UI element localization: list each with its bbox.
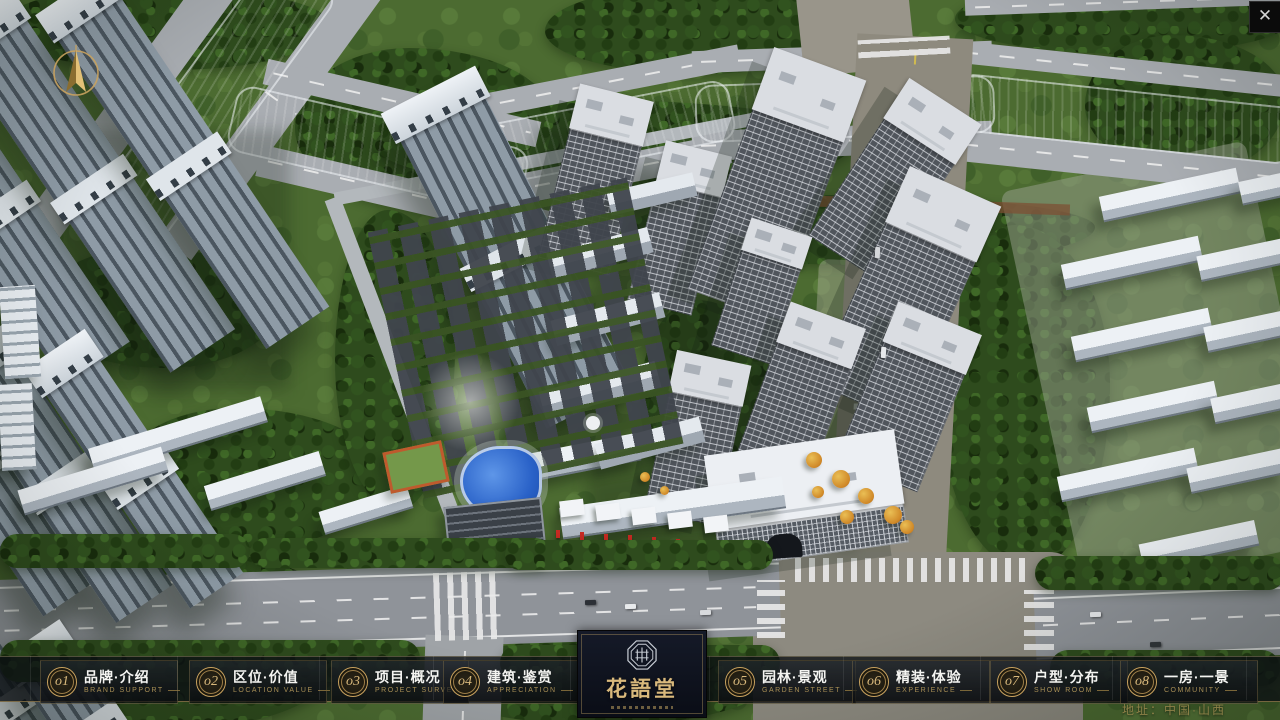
nav-number-badge: o3 [338, 667, 368, 697]
nav-divider [1112, 656, 1113, 700]
nav-label-en: APPRECIATION [487, 687, 573, 695]
nav-item-landscape[interactable]: o5 园林·景观GARDEN STREET [718, 660, 856, 704]
nav-label-zh: 品牌·介绍 [84, 669, 171, 685]
nav-divider [177, 656, 178, 700]
nav-item-brand-intro[interactable]: o1 品牌·介绍BRAND SUPPORT [40, 660, 178, 704]
nav-number-badge: o2 [196, 667, 226, 697]
nav-divider [980, 656, 981, 700]
nav-divider [709, 656, 710, 700]
nav-number: o5 [733, 674, 747, 690]
nav-label-zh: 一房·一景 [1164, 669, 1237, 685]
logo-title: 花語堂 [606, 673, 678, 703]
nav-item-floorplan[interactable]: o7 户型·分布SHOW ROOM [990, 660, 1128, 704]
nav-label-zh: 园林·景观 [762, 669, 849, 685]
nav-label-zh: 户型·分布 [1034, 669, 1109, 685]
compass-icon [44, 38, 108, 102]
nav-number-badge: o8 [1127, 667, 1157, 697]
nav-label-en: SHOW ROOM [1034, 687, 1109, 695]
nav-label-en: GARDEN STREET [762, 687, 849, 695]
nav-item-interior-experience[interactable]: o6 精装·体验EXPERIENCE [852, 660, 990, 704]
nav-number: o3 [346, 674, 360, 690]
nav-divider [1246, 656, 1247, 700]
close-icon: ✕ [1258, 6, 1272, 25]
nav-label-zh: 区位·价值 [233, 669, 320, 685]
nav-number-badge: o7 [997, 667, 1027, 697]
logo-seal-icon [627, 640, 657, 670]
nav-divider [843, 656, 844, 700]
nav-item-location-value[interactable]: o2 区位·价值LOCATION VALUE [189, 660, 327, 704]
nav-divider [319, 656, 320, 700]
nav-number: o8 [1135, 674, 1149, 690]
project-logo: 花語堂 [577, 630, 707, 718]
nav-divider [30, 656, 31, 700]
nav-label-en: LOCATION VALUE [233, 687, 320, 695]
nav-label-en: BRAND SUPPORT [84, 687, 171, 695]
nav-number: o4 [458, 674, 472, 690]
nav-divider [433, 656, 434, 700]
address-label: 地址：中国·山西 [1122, 701, 1274, 718]
nav-label-zh: 精装·体验 [896, 669, 972, 685]
nav-number: o6 [867, 674, 881, 690]
nav-item-architecture[interactable]: o4 建筑·鉴赏APPRECIATION [443, 660, 581, 704]
nav-item-room-view[interactable]: o8 一房·一景COMMUNITY [1120, 660, 1258, 704]
nav-number-badge: o5 [725, 667, 755, 697]
nav-label-en: EXPERIENCE [896, 687, 972, 695]
nav-divider [570, 656, 571, 700]
close-button[interactable]: ✕ [1249, 1, 1280, 33]
app-window: ✕ o1 品牌·介绍BRAND SUPPORT o2 区位·价值LOCATION… [0, 0, 1280, 720]
masterplan-render [0, 0, 1280, 720]
nav-number-badge: o6 [859, 667, 889, 697]
logo-tagline-mark [611, 706, 673, 709]
nav-label-en: COMMUNITY [1164, 687, 1237, 695]
nav-number-badge: o1 [47, 667, 77, 697]
nav-number: o2 [204, 674, 218, 690]
nav-number: o7 [1005, 674, 1019, 690]
vignette [0, 0, 1280, 720]
nav-number-badge: o4 [450, 667, 480, 697]
nav-number: o1 [55, 674, 69, 690]
nav-label-zh: 建筑·鉴赏 [487, 669, 573, 685]
